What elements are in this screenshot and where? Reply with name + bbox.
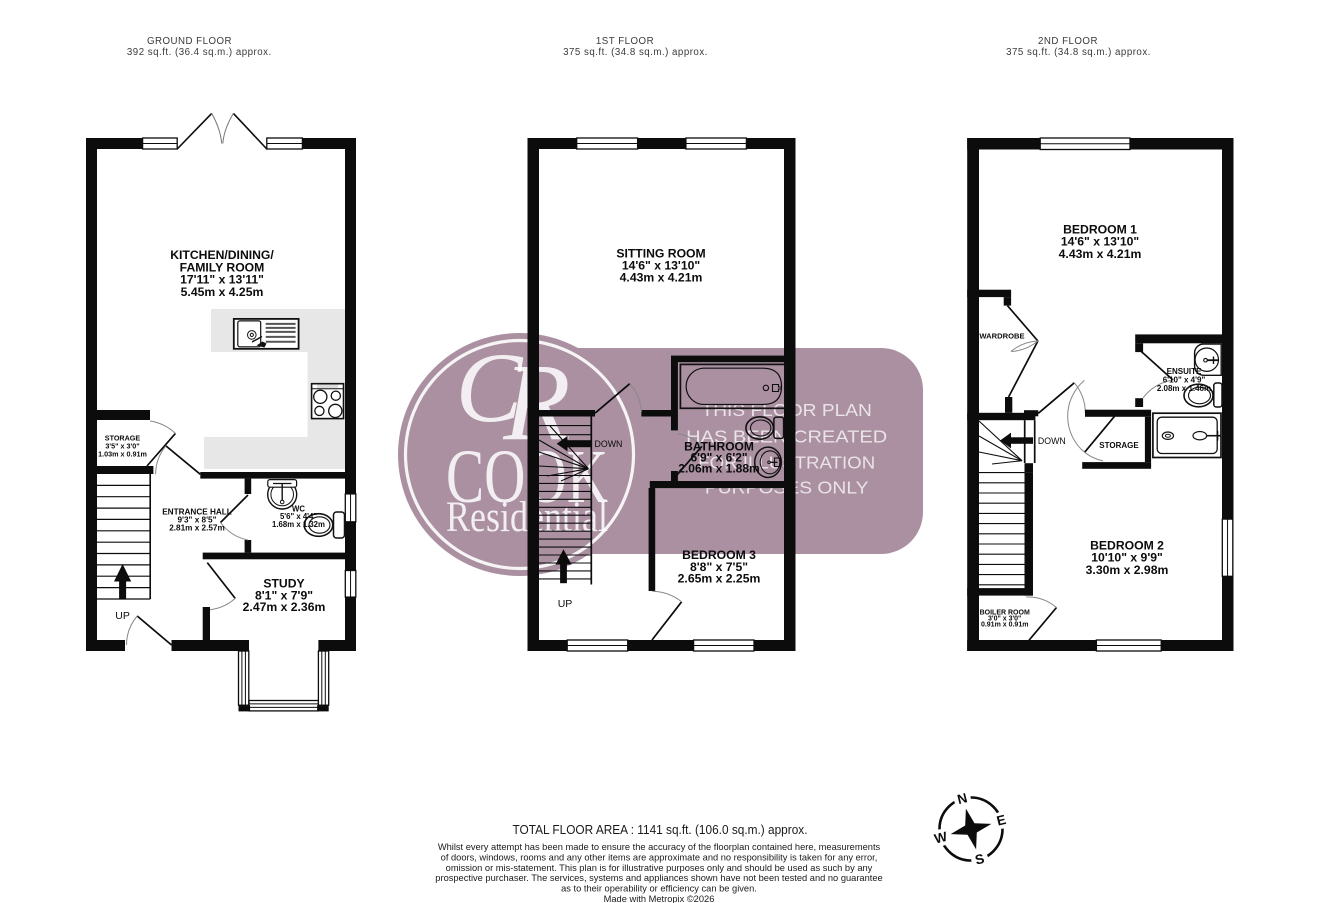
svg-text:0.91m x 0.91m: 0.91m x 0.91m bbox=[981, 622, 1028, 629]
svg-text:omission or mis-statement. Thi: omission or mis-statement. This plan is … bbox=[446, 863, 873, 873]
svg-text:1ST FLOOR: 1ST FLOOR bbox=[596, 36, 654, 47]
svg-text:2.81m x 2.57m: 2.81m x 2.57m bbox=[169, 524, 225, 533]
svg-text:Residential: Residential bbox=[446, 494, 608, 541]
svg-text:W: W bbox=[933, 829, 949, 847]
svg-text:of doors, windows, rooms and a: of doors, windows, rooms and any other i… bbox=[441, 852, 878, 862]
svg-text:UP: UP bbox=[558, 598, 573, 610]
svg-text:DOWN: DOWN bbox=[1038, 436, 1066, 446]
svg-text:392 sq.ft. (36.4 sq.m.) approx: 392 sq.ft. (36.4 sq.m.) approx. bbox=[127, 47, 272, 58]
svg-text:2.65m x 2.25m: 2.65m x 2.25m bbox=[678, 572, 761, 586]
svg-text:1.68m x 1.32m: 1.68m x 1.32m bbox=[272, 520, 325, 529]
svg-text:TOTAL FLOOR AREA : 1141 sq.ft.: TOTAL FLOOR AREA : 1141 sq.ft. (106.0 sq… bbox=[513, 822, 808, 837]
svg-text:375 sq.ft. (34.8 sq.m.) approx: 375 sq.ft. (34.8 sq.m.) approx. bbox=[563, 47, 708, 58]
svg-text:WARDROBE: WARDROBE bbox=[979, 331, 1024, 340]
svg-text:UP: UP bbox=[115, 610, 130, 622]
svg-text:STORAGE: STORAGE bbox=[1099, 441, 1139, 450]
svg-text:2.06m x 1.88m: 2.06m x 1.88m bbox=[678, 462, 759, 476]
svg-text:Made with Metropix ©2026: Made with Metropix ©2026 bbox=[604, 894, 715, 903]
svg-text:2.47m x 2.36m: 2.47m x 2.36m bbox=[243, 600, 326, 614]
svg-text:1.03m x 0.91m: 1.03m x 0.91m bbox=[98, 450, 147, 459]
svg-text:375 sq.ft. (34.8 sq.m.) approx: 375 sq.ft. (34.8 sq.m.) approx. bbox=[1006, 47, 1151, 58]
svg-text:GROUND FLOOR: GROUND FLOOR bbox=[147, 36, 232, 47]
svg-text:as to their operability or eff: as to their operability or efficiency ca… bbox=[561, 884, 757, 894]
svg-text:4.43m x 4.21m: 4.43m x 4.21m bbox=[620, 271, 703, 285]
svg-text:DOWN: DOWN bbox=[595, 439, 623, 449]
svg-text:Whilst every attempt has been: Whilst every attempt has been made to en… bbox=[438, 842, 881, 852]
svg-text:5.45m x 4.25m: 5.45m x 4.25m bbox=[181, 285, 264, 299]
svg-text:3.30m x 2.98m: 3.30m x 2.98m bbox=[1086, 563, 1169, 577]
svg-text:2.08m x 1.46m: 2.08m x 1.46m bbox=[1157, 384, 1211, 393]
svg-text:prospective purchaser. The ser: prospective purchaser. The services, sys… bbox=[435, 873, 882, 883]
svg-text:2ND FLOOR: 2ND FLOOR bbox=[1038, 36, 1098, 47]
svg-text:4.43m x 4.21m: 4.43m x 4.21m bbox=[1059, 247, 1142, 261]
